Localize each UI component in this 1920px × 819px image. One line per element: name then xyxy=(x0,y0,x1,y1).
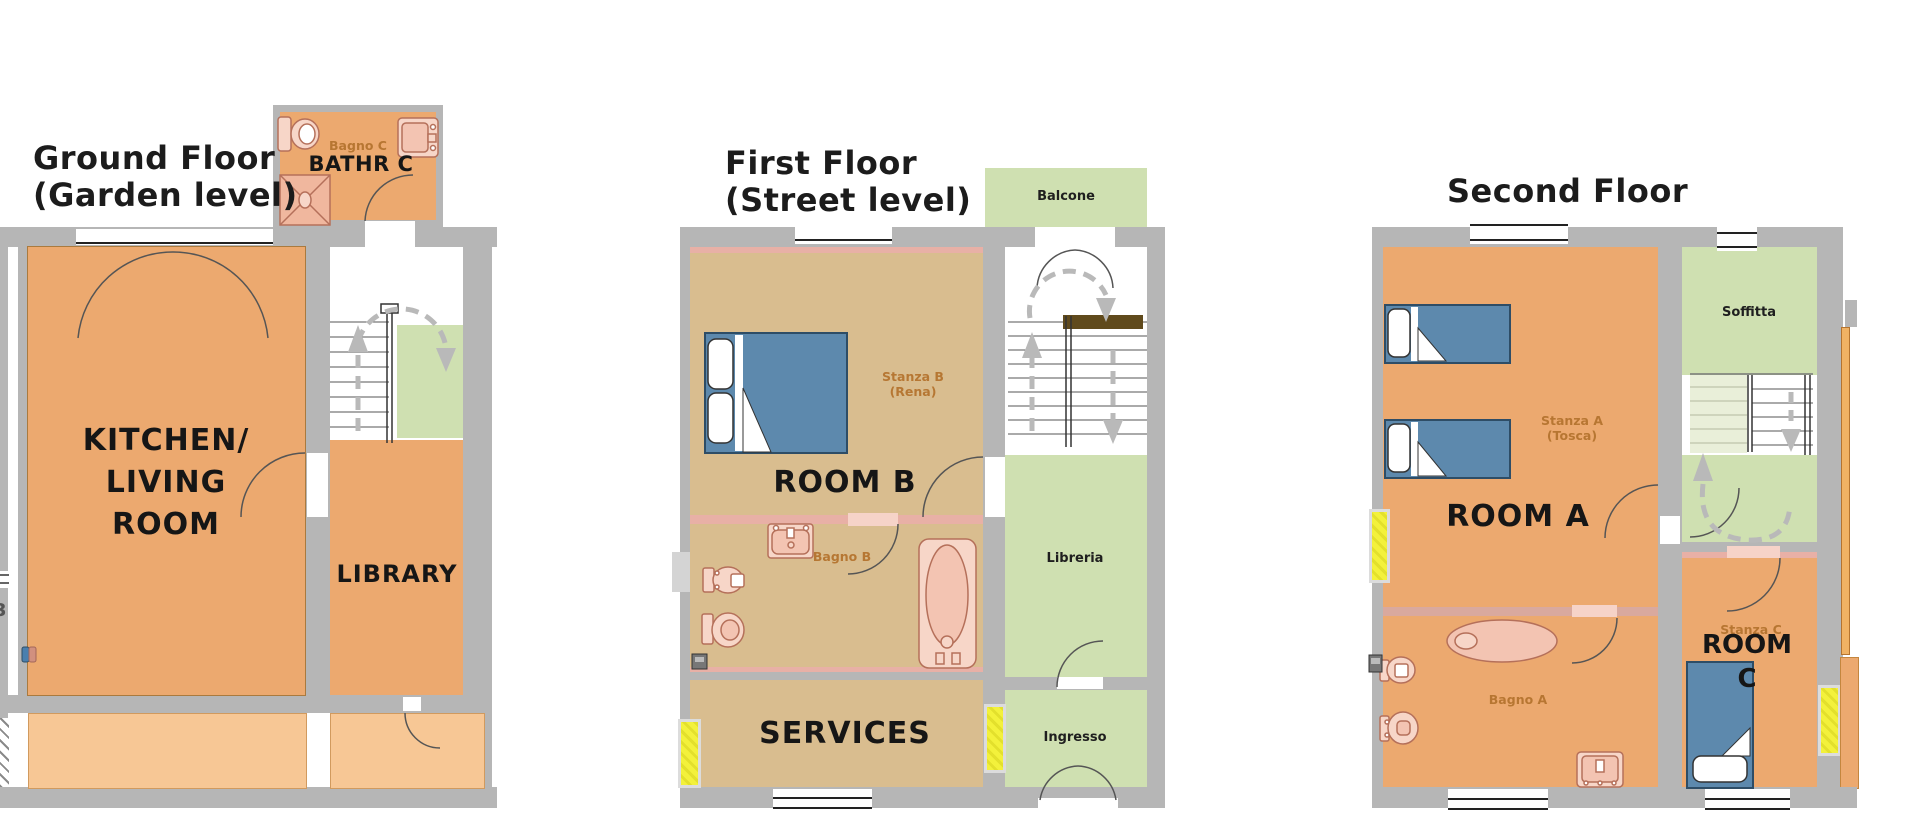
boiler-icon xyxy=(1369,655,1382,672)
room-b-label: ROOM B xyxy=(773,462,916,504)
single-bed-icon xyxy=(1385,420,1510,478)
sf-stairs-left xyxy=(1690,387,1747,443)
room-a-label: ROOM A xyxy=(1446,496,1590,538)
bathtub-icon xyxy=(1447,620,1557,662)
bidet-icon xyxy=(702,613,744,647)
ff-stairs xyxy=(1008,322,1147,434)
libreria-label: Libreria xyxy=(1047,551,1104,566)
bidet-icon xyxy=(1380,712,1418,744)
ff-stair-arrows xyxy=(1022,271,1123,444)
edge-fragment: 3 xyxy=(0,600,7,621)
room-c-label: ROOM C xyxy=(1702,628,1792,696)
ground-floor-title: Ground Floor (Garden level) xyxy=(33,140,298,214)
gf-left-window-lines xyxy=(0,575,9,583)
ff-stair-handrail-bar xyxy=(1063,315,1143,329)
stanza-a-label: Stanza A (Tosca) xyxy=(1541,413,1603,443)
library-label: LIBRARY xyxy=(336,560,457,588)
ff-bottom-window-lines xyxy=(773,798,872,808)
double-bed-icon xyxy=(705,333,847,453)
second-floor-title: Second Floor xyxy=(1447,173,1688,210)
linework-layer xyxy=(0,0,1920,819)
sink-icon xyxy=(1577,752,1623,787)
toilet-icon xyxy=(1380,657,1415,683)
toilet-icon xyxy=(703,567,744,593)
kitchen-label: KITCHEN/ LIVING ROOM xyxy=(83,420,250,546)
sf-stair-rails xyxy=(1748,375,1810,455)
single-bed-icon xyxy=(1385,305,1510,363)
sf-stair-arrows xyxy=(1693,392,1801,540)
soffitta-label: Soffitta xyxy=(1722,305,1776,320)
gf-stair-rail xyxy=(381,304,398,443)
ingresso-label: Ingresso xyxy=(1043,730,1106,745)
floorplan-canvas: Ground Floor (Garden level) Bagno C BATH… xyxy=(0,0,1920,819)
sink-icon xyxy=(768,524,813,558)
first-floor-title: First Floor (Street level) xyxy=(725,145,971,219)
boiler-icon xyxy=(692,654,707,669)
balcone-label: Balcone xyxy=(1037,189,1095,204)
sf-stairs-right xyxy=(1752,389,1813,445)
bathtub-icon xyxy=(919,539,976,668)
bagno-c-label: Bagno C xyxy=(329,138,387,153)
stanza-b-label: Stanza B (Rena) xyxy=(882,369,944,399)
gf-stair-arrows xyxy=(348,309,456,432)
washer-icon xyxy=(22,647,36,662)
bagno-b-label: Bagno B xyxy=(813,549,871,564)
services-label: SERVICES xyxy=(759,713,931,755)
bathr-c-label: BATHR C xyxy=(309,152,414,176)
bagno-a-label: Bagno A xyxy=(1489,692,1547,707)
